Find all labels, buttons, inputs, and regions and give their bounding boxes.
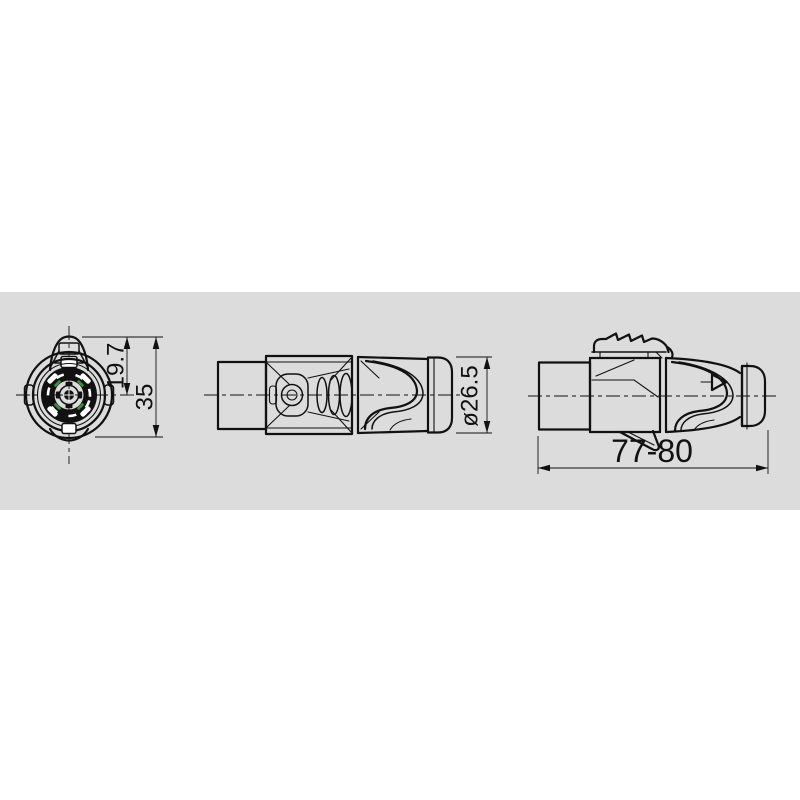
dimension-label-35: 35 <box>132 384 159 411</box>
dimension-label-diameter: ø26.5 <box>457 365 484 426</box>
side-view-dimensions: ø26.5 <box>456 357 492 433</box>
dimension-label-length: 77-80 <box>611 433 693 469</box>
screenshot-canvas: 19.7 35 <box>0 0 800 800</box>
dimension-label-19-7: 19.7 <box>103 343 130 390</box>
technical-drawing: 19.7 35 <box>0 0 800 800</box>
drawing-band <box>0 292 800 510</box>
